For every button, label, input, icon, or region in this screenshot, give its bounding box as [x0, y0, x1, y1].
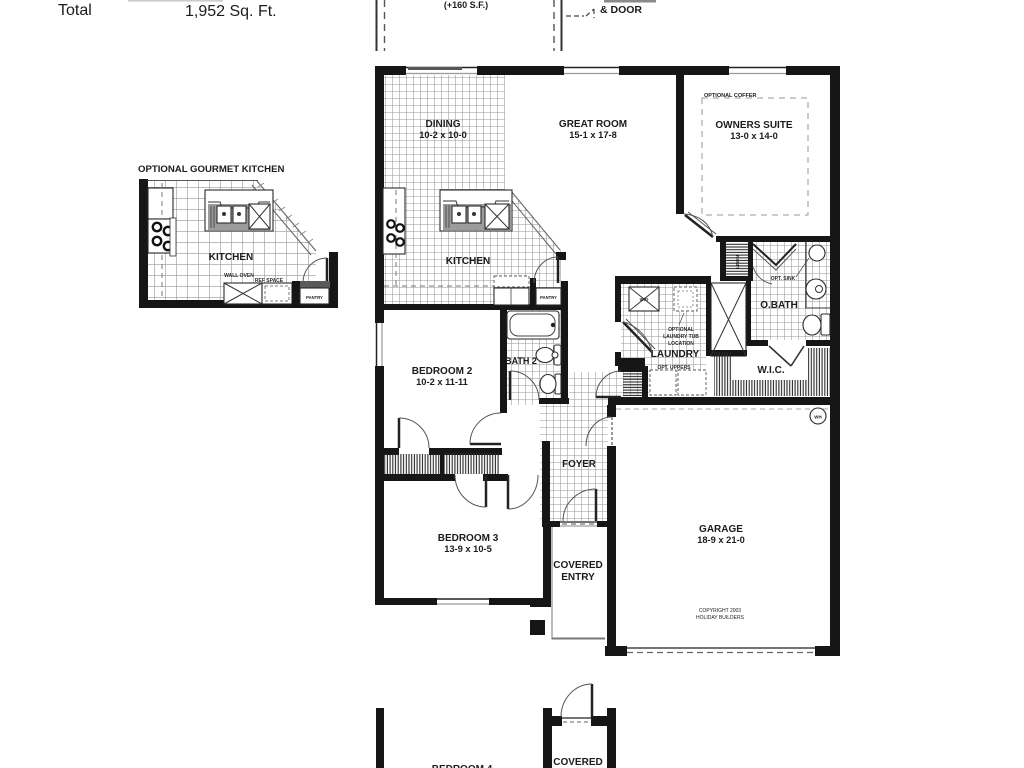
svg-text:BATH 2: BATH 2	[505, 356, 537, 366]
svg-text:PANTRY: PANTRY	[306, 295, 323, 300]
svg-text:WH: WH	[814, 415, 822, 420]
svg-text:W/D: W/D	[640, 297, 649, 302]
svg-text:KITCHEN: KITCHEN	[446, 256, 490, 267]
svg-text:COVERED: COVERED	[553, 757, 602, 768]
svg-text:& DOOR: & DOOR	[600, 4, 642, 16]
svg-text:BEDROOM 3: BEDROOM 3	[438, 533, 499, 544]
svg-text:BEDROOM 4: BEDROOM 4	[432, 764, 493, 768]
svg-text:OPTIONAL: OPTIONAL	[668, 327, 694, 333]
svg-text:KITCHEN: KITCHEN	[209, 252, 253, 263]
svg-text:OPT. SINK: OPT. SINK	[771, 276, 796, 282]
svg-text:FOYER: FOYER	[562, 459, 596, 470]
svg-text:O.BATH: O.BATH	[760, 300, 798, 311]
svg-text:ENTRY: ENTRY	[561, 572, 595, 583]
svg-text:(+160 S.F.): (+160 S.F.)	[444, 0, 488, 10]
svg-text:GREAT ROOM: GREAT ROOM	[559, 119, 627, 130]
svg-text:GARAGE: GARAGE	[699, 524, 743, 535]
svg-text:10-2 x 11-11: 10-2 x 11-11	[416, 377, 468, 387]
svg-text:HOLIDAY BUILDERS: HOLIDAY BUILDERS	[696, 615, 745, 621]
svg-text:13-0 x 14-0: 13-0 x 14-0	[730, 131, 778, 141]
svg-text:LAUNDRY TUB: LAUNDRY TUB	[663, 334, 699, 340]
svg-text:WALL OVEN: WALL OVEN	[224, 273, 254, 279]
svg-text:10-2 x 10-0: 10-2 x 10-0	[419, 130, 467, 140]
svg-text:Total: Total	[58, 2, 92, 19]
svg-text:OPTIONAL GOURMET KITCHEN: OPTIONAL GOURMET KITCHEN	[138, 164, 284, 175]
svg-text:COPYRIGHT 2003: COPYRIGHT 2003	[699, 608, 741, 614]
svg-text:LAUNDRY: LAUNDRY	[651, 349, 700, 360]
svg-text:W.I.C.: W.I.C.	[757, 365, 784, 376]
svg-text:OWNERS SUITE: OWNERS SUITE	[715, 120, 793, 131]
svg-text:18-9 x 21-0: 18-9 x 21-0	[697, 535, 745, 545]
svg-text:1,952 Sq. Ft.: 1,952 Sq. Ft.	[185, 3, 277, 20]
svg-text:COVERED: COVERED	[553, 560, 602, 571]
svg-text:PANTRY: PANTRY	[540, 295, 557, 300]
svg-text:15-1 x 17-8: 15-1 x 17-8	[569, 130, 617, 140]
svg-text:13-9 x 10-5: 13-9 x 10-5	[444, 544, 492, 554]
svg-text:LINEN: LINEN	[735, 255, 740, 269]
svg-text:BEDROOM 2: BEDROOM 2	[412, 366, 473, 377]
svg-text:DINING: DINING	[426, 119, 461, 130]
svg-text:LOCATION: LOCATION	[668, 341, 694, 347]
